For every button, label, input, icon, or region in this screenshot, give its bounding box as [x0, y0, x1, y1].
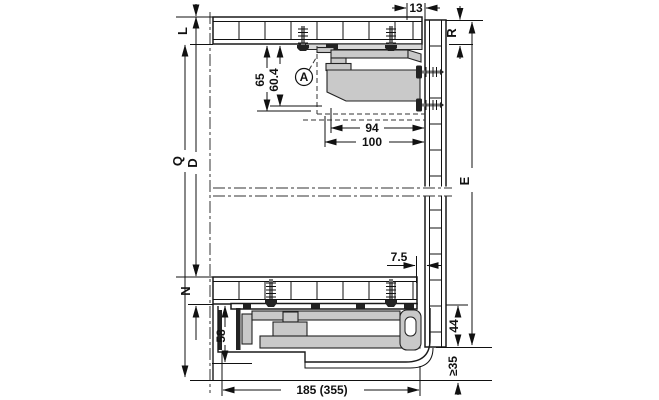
- dim-label-e: E: [457, 176, 472, 185]
- dim-label-13: 13: [409, 1, 423, 15]
- dim-label-7-5: 7.5: [391, 250, 408, 264]
- screw: [265, 279, 277, 307]
- dim-label-94: 94: [365, 121, 379, 135]
- dim-label-min35: ≥35: [446, 356, 460, 376]
- dim-label-65: 65: [253, 73, 267, 87]
- dim-label-a: A: [300, 70, 309, 84]
- dim-label-185-355: 185 (355): [296, 383, 347, 397]
- runner-skirt: [305, 348, 433, 368]
- screws: [265, 26, 444, 307]
- dim-label-q: Q: [170, 156, 185, 166]
- installation-diagram: L Q D N 65 60.4 A 94: [0, 0, 659, 400]
- dim-label-60-4: 60.4: [267, 68, 281, 92]
- dim-label-100: 100: [362, 135, 382, 149]
- dim-label-44: 44: [447, 319, 461, 333]
- dim-label-r: R: [444, 28, 459, 38]
- technical-drawing-canvas: L Q D N 65 60.4 A 94: [0, 0, 659, 400]
- bottom-runner-fitting: [218, 304, 433, 369]
- dim-label-n: N: [178, 286, 193, 295]
- screw: [385, 279, 397, 307]
- drive-unit-box: [327, 70, 420, 101]
- dim-label-l: L: [175, 27, 190, 35]
- dim-label-58: 58: [214, 329, 228, 343]
- dim-label-d: D: [185, 158, 200, 167]
- back-panel: [423, 20, 452, 347]
